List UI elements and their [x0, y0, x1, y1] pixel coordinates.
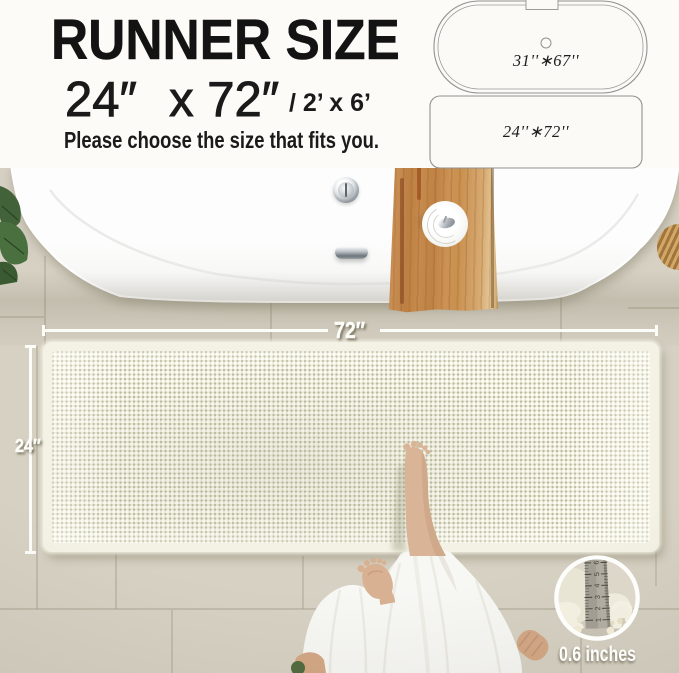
svg-text:3: 3: [594, 595, 602, 599]
svg-text:4: 4: [593, 583, 601, 587]
svg-text:6: 6: [593, 560, 601, 564]
svg-text:1: 1: [595, 618, 603, 622]
svg-text:31''∗67'': 31''∗67'': [512, 51, 579, 70]
svg-text:2: 2: [594, 606, 602, 610]
svg-text:24''∗72'': 24''∗72'': [503, 122, 569, 141]
svg-text:5: 5: [593, 572, 601, 576]
